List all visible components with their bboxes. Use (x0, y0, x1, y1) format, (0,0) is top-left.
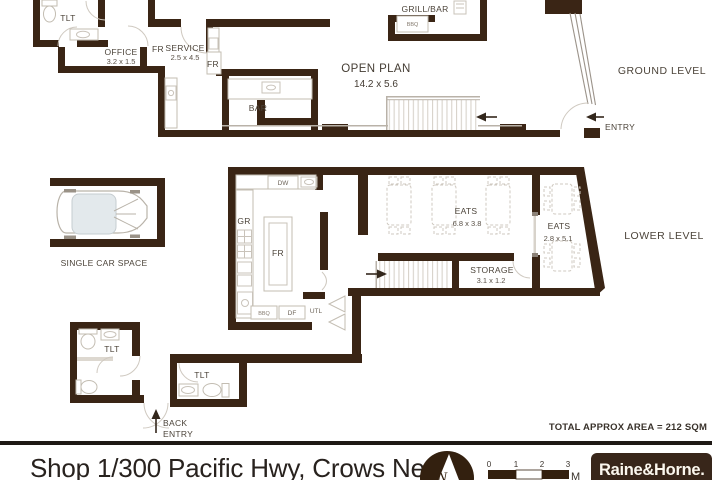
toilet-icon (44, 6, 56, 22)
bench (208, 28, 219, 52)
level-label-lower: LOWER LEVEL (624, 230, 704, 242)
divider-line (0, 441, 712, 445)
label-back-entry-2: ENTRY (163, 429, 193, 439)
sink-icon (70, 29, 98, 40)
label-back-entry-1: BACK (163, 418, 187, 428)
scale-tick-3: 3 (566, 460, 571, 469)
label-storage: STORAGE (470, 265, 514, 275)
stairs-lower-icon (376, 261, 451, 288)
brand-name: Raine&Horne. (599, 461, 705, 479)
toilet-icon (203, 384, 221, 397)
label-eats-side: EATS (548, 221, 571, 231)
label-gr: GR (237, 216, 250, 226)
level-label-ground: GROUND LEVEL (618, 65, 706, 77)
service-dim: 2.5 x 4.5 (171, 53, 200, 62)
toilet-icon (81, 334, 95, 349)
label-bar: BAR (249, 103, 267, 113)
scale-tick-0: 0 (487, 460, 492, 469)
label-entry: ENTRY (605, 122, 635, 132)
scale-tick-1: 1 (514, 460, 519, 469)
label-tlt-1: TLT (104, 344, 119, 354)
scale-tick-2: 2 (540, 460, 545, 469)
brand-logo: Raine&Horne. Commercial (591, 453, 712, 480)
toilet-icon (79, 329, 97, 334)
label-bbq-lower: BBQ (258, 311, 270, 317)
toilet-icon (81, 381, 97, 394)
open-plan-dim: 14.2 x 5.6 (354, 79, 398, 90)
label-df: DF (288, 310, 297, 317)
label-car-space: SINGLE CAR SPACE (61, 258, 148, 268)
compass-letter: N (436, 470, 448, 480)
stairs-ground-icon (386, 96, 480, 130)
toilet-icon (42, 0, 57, 6)
label-grill-bar: GRILL/BAR (401, 4, 448, 14)
scale-unit: M (571, 471, 580, 480)
label-office: OFFICE (105, 47, 138, 57)
floorplan-canvas: TLT OFFICE 3.2 x 1.5 FR SERVICE 2.5 x 4.… (0, 0, 712, 480)
eats-main-dim: 6.8 x 3.8 (453, 219, 482, 228)
total-area-label: TOTAL APPROX AREA = 212 SQM (549, 422, 707, 433)
label-service: SERVICE (165, 43, 204, 53)
label-dw: DW (278, 180, 290, 187)
floorplan-page: TLT OFFICE 3.2 x 1.5 FR SERVICE 2.5 x 4.… (0, 0, 712, 480)
label-utl: UTL (310, 308, 323, 315)
eats-side-dim: 2.8 x 5.1 (544, 234, 573, 243)
toilet-icon (76, 380, 81, 394)
storage-dim: 3.1 x 1.2 (477, 276, 506, 285)
toilet-icon (222, 384, 229, 398)
label-bbq-ground: BBQ (407, 22, 419, 28)
address-title: Shop 1/300 Pacific Hwy, Crows Nest (30, 453, 446, 480)
label-fr-1: FR (152, 44, 164, 54)
label-fr-island: FR (272, 248, 284, 258)
label-tlt-ground: TLT (60, 13, 75, 23)
label-eats-main: EATS (455, 206, 478, 216)
office-dim: 3.2 x 1.5 (107, 57, 136, 66)
label-fr-2: FR (207, 59, 219, 69)
label-tlt-2: TLT (194, 370, 209, 380)
label-open-plan: OPEN PLAN (341, 63, 410, 75)
